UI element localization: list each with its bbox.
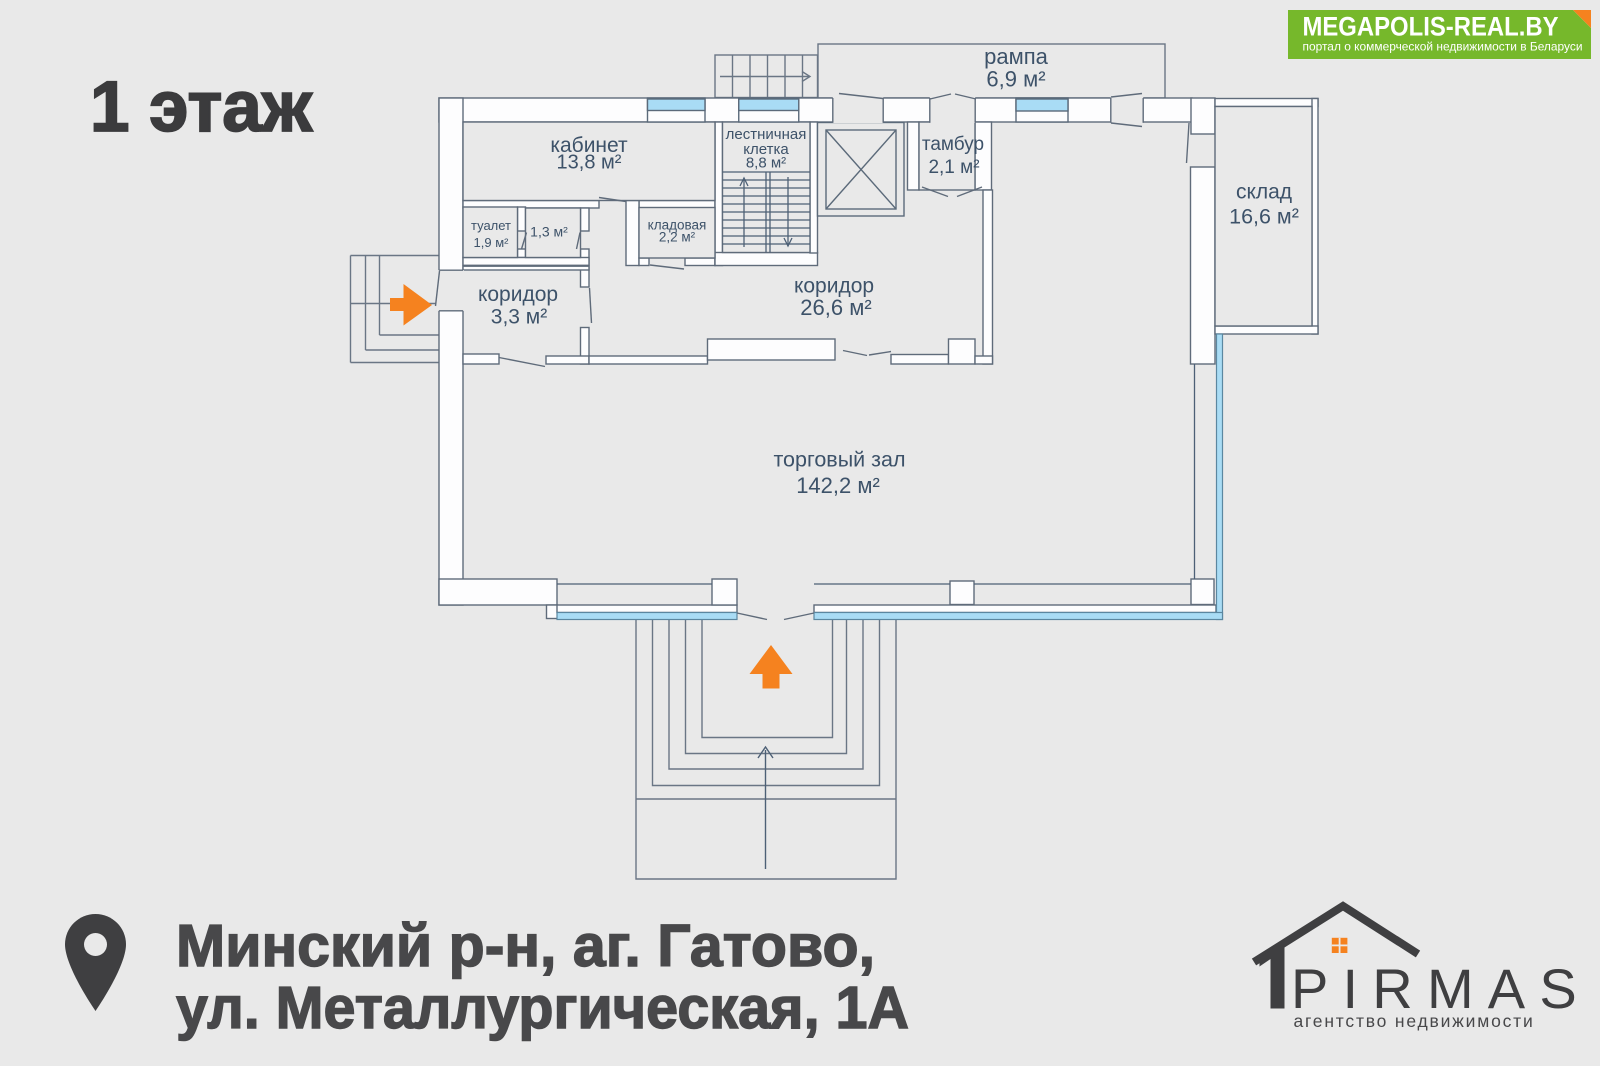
svg-text:портал о коммерческой недвижим: портал о коммерческой недвижимости в Бел…: [1303, 40, 1583, 54]
svg-text:агентство недвижимости: агентство недвижимости: [1293, 1011, 1534, 1031]
svg-text:16,6 м²: 16,6 м²: [1229, 205, 1299, 229]
svg-text:13,8 м²: 13,8 м²: [557, 152, 622, 174]
svg-text:8,8 м²: 8,8 м²: [746, 155, 786, 172]
svg-text:туалет: туалет: [471, 218, 511, 233]
svg-text:6,9 м²: 6,9 м²: [986, 67, 1045, 92]
svg-text:2,1 м²: 2,1 м²: [928, 157, 979, 178]
svg-text:Минский р-н, аг. Гатово,: Минский р-н, аг. Гатово,: [176, 913, 875, 979]
svg-text:ул. Металлургическая, 1А: ул. Металлургическая, 1А: [176, 975, 909, 1041]
svg-text:1,9 м²: 1,9 м²: [474, 235, 510, 250]
svg-text:26,6 м²: 26,6 м²: [800, 295, 871, 320]
svg-text:1,3 м²: 1,3 м²: [530, 224, 568, 240]
svg-text:2,2 м²: 2,2 м²: [659, 230, 696, 245]
svg-text:торговый зал: торговый зал: [773, 448, 905, 472]
svg-text:тамбур: тамбур: [922, 134, 984, 155]
svg-text:142,2 м²: 142,2 м²: [796, 473, 880, 498]
svg-text:коридор: коридор: [478, 283, 558, 306]
svg-text:1 этаж: 1 этаж: [90, 68, 313, 147]
svg-text:MEGAPOLIS-REAL.BY: MEGAPOLIS-REAL.BY: [1303, 12, 1559, 42]
svg-text:рампа: рампа: [984, 44, 1049, 69]
svg-text:3,3 м²: 3,3 м²: [491, 306, 547, 329]
svg-text:склад: склад: [1236, 181, 1292, 204]
